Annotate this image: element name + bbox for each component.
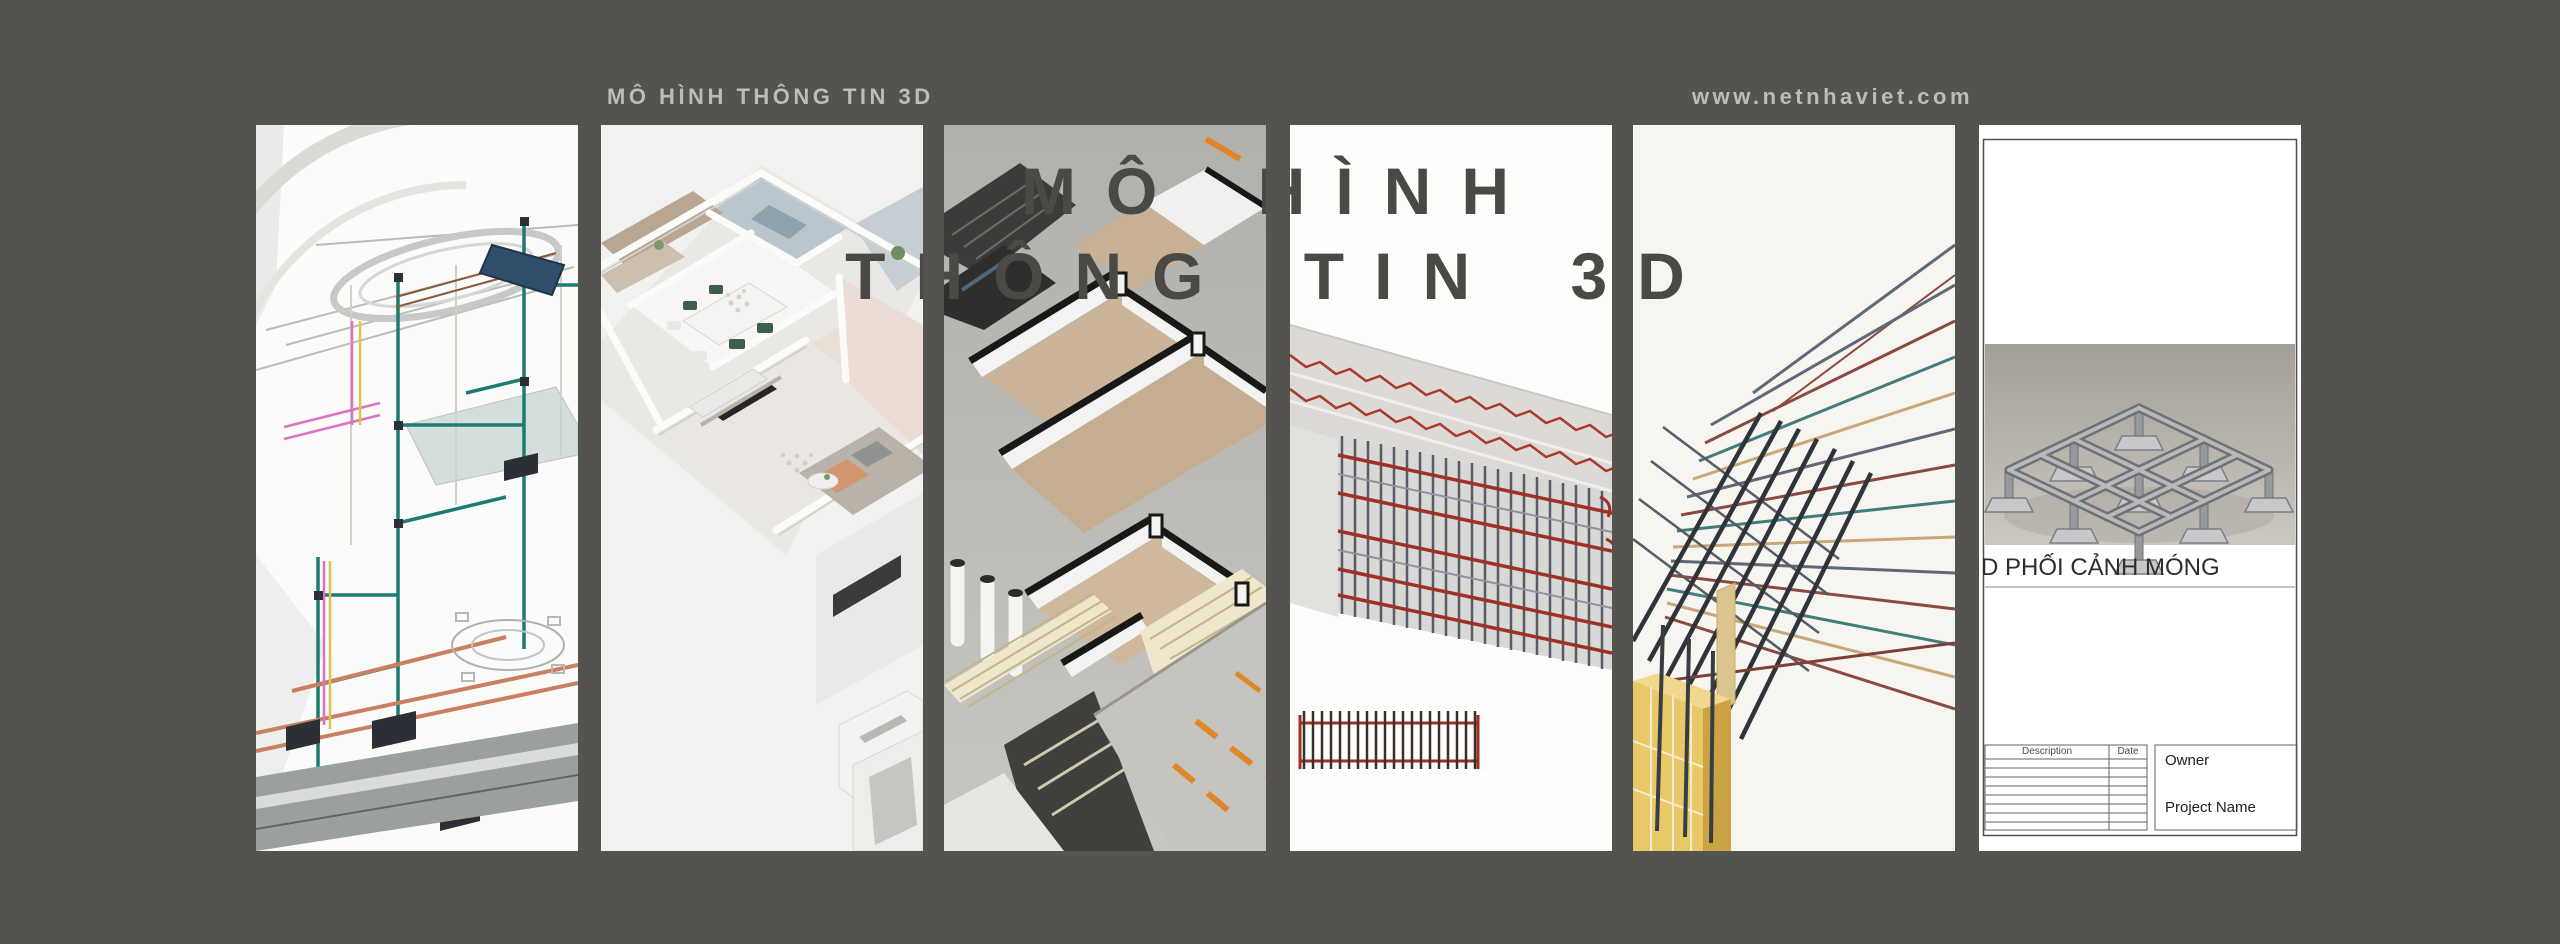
banner: MÔ HÌNH THÔNG TIN 3D www.netnhaviet.com [0,0,2560,944]
foundation-sheet-art [1979,125,2301,851]
mep-model-art [256,125,578,851]
right-margin [2301,125,2560,851]
left-margin [0,125,256,851]
panel-gap [1955,125,1979,851]
panel-gap [923,125,944,851]
titleblock-project-label: Project Name [2165,799,2256,816]
panel-apartment-plan [601,125,923,851]
panel-gap [578,125,601,851]
titleblock-date-header: Date [2109,746,2147,757]
titleblock-owner-label: Owner [2165,752,2209,769]
panel-gap [1612,125,1633,851]
sheet-view-label: D PHỐI CẢNH MÓNG [1981,554,2220,582]
apartment-plan-art [601,125,923,851]
house-section-art [944,125,1266,851]
beam-rebar-art [1290,125,1612,851]
panel-column-rebar [1633,125,1955,851]
panel-beam-rebar [1290,125,1612,851]
panel-mep-model [256,125,578,851]
titleblock-description-header: Description [1985,746,2109,757]
panel-house-section [944,125,1266,851]
panel-foundation-sheet: D PHỐI CẢNH MÓNG Description Date Owner … [1979,125,2301,851]
website-url: www.netnhaviet.com [1692,84,1973,110]
column-rebar-art [1633,125,1955,851]
banner-top-title: MÔ HÌNH THÔNG TIN 3D [607,84,934,110]
panel-gap [1266,125,1290,851]
